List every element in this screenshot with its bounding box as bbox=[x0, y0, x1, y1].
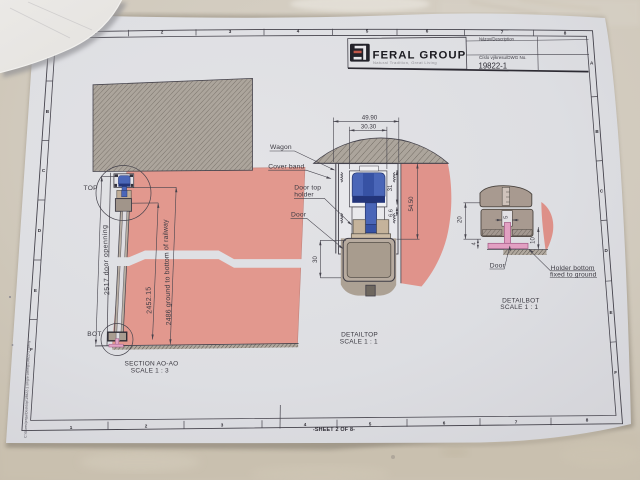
svg-text:Cover band: Cover band bbox=[268, 163, 304, 170]
svg-text:10: 10 bbox=[531, 237, 537, 244]
svg-text:Wagon: Wagon bbox=[270, 144, 292, 151]
svg-text:49.90: 49.90 bbox=[362, 115, 378, 122]
svg-text:4: 4 bbox=[471, 242, 477, 245]
svg-text:SCALE 1 : 1: SCALE 1 : 1 bbox=[500, 304, 538, 311]
svg-text:2: 2 bbox=[161, 29, 164, 34]
svg-text:5: 5 bbox=[369, 421, 372, 426]
svg-text:holder: holder bbox=[294, 191, 314, 198]
svg-text:Číslo výkresu/DWG No.: Číslo výkresu/DWG No. bbox=[479, 54, 527, 60]
svg-text:fixed to ground: fixed to ground bbox=[550, 271, 597, 278]
svg-text:8: 8 bbox=[564, 30, 567, 35]
svg-text:1: 1 bbox=[70, 425, 73, 430]
svg-text:30: 30 bbox=[313, 256, 319, 263]
svg-text:-SHEET 2 OF 8-: -SHEET 2 OF 8- bbox=[313, 427, 355, 433]
svg-text:4: 4 bbox=[304, 422, 307, 427]
svg-text:Door: Door bbox=[490, 262, 506, 269]
svg-text:DETAILTOP: DETAILTOP bbox=[341, 331, 378, 338]
svg-text:4: 4 bbox=[297, 29, 300, 34]
svg-text:3: 3 bbox=[229, 29, 232, 34]
svg-text:20: 20 bbox=[458, 216, 464, 223]
svg-text:BOT: BOT bbox=[87, 331, 101, 338]
svg-text:F: F bbox=[614, 370, 617, 375]
svg-text:E: E bbox=[34, 288, 37, 293]
svg-text:8: 8 bbox=[586, 418, 589, 423]
svg-text:2452.15: 2452.15 bbox=[146, 287, 154, 314]
svg-text:7: 7 bbox=[501, 29, 504, 34]
svg-text:Názov/Description: Názov/Description bbox=[479, 36, 514, 41]
svg-text:2: 2 bbox=[145, 424, 148, 429]
svg-text:19822-1: 19822-1 bbox=[479, 62, 508, 71]
svg-text:3: 3 bbox=[221, 423, 224, 428]
svg-text:54.50: 54.50 bbox=[409, 196, 415, 212]
svg-text:SECTION AO-AO: SECTION AO-AO bbox=[125, 360, 179, 367]
svg-text:5: 5 bbox=[366, 28, 369, 33]
svg-text:5: 5 bbox=[504, 216, 510, 219]
svg-text:30.30: 30.30 bbox=[361, 124, 377, 131]
svg-text:6.6: 6.6 bbox=[389, 209, 395, 217]
svg-text:31: 31 bbox=[388, 184, 394, 191]
svg-text:SCALE 1 : 1: SCALE 1 : 1 bbox=[340, 338, 378, 345]
svg-text:TOP: TOP bbox=[84, 185, 99, 192]
svg-text:6: 6 bbox=[443, 420, 446, 425]
svg-text:Natural Tradition, Great Livin: Natural Tradition, Great Living bbox=[373, 60, 437, 65]
svg-text:Door: Door bbox=[291, 211, 307, 218]
svg-text:7: 7 bbox=[515, 419, 518, 424]
svg-text:SCALE 1 : 3: SCALE 1 : 3 bbox=[131, 368, 169, 375]
svg-text:6: 6 bbox=[426, 29, 429, 34]
svg-text:E: E bbox=[609, 310, 612, 315]
